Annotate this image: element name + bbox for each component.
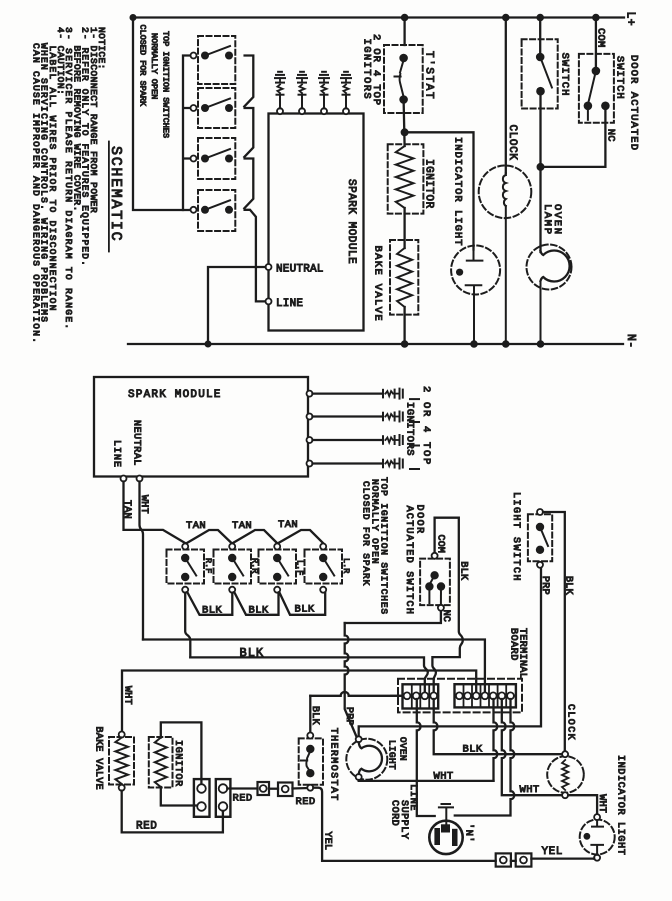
svg-text:RED: RED (136, 821, 157, 833)
svg-text:L+: L+ (624, 12, 637, 27)
svg-text:IGNITORS: IGNITORS (361, 39, 373, 101)
svg-text:WHT: WHT (520, 784, 540, 796)
svg-text:NEUTRAL: NEUTRAL (131, 420, 142, 466)
svg-text:BLK: BLK (563, 576, 574, 595)
svg-text:ACTUATED SWITCH: ACTUATED SWITCH (403, 506, 414, 616)
svg-text:BLK: BLK (240, 646, 265, 660)
svg-text:BLK: BLK (309, 706, 320, 725)
svg-text:WHT: WHT (596, 794, 607, 813)
svg-text:BLK: BLK (249, 605, 269, 617)
svg-text:SPARK MODULE: SPARK MODULE (128, 389, 222, 401)
svg-text:IGNITOR: IGNITOR (423, 159, 435, 209)
svg-text:LINE: LINE (111, 440, 122, 468)
svg-text:CLOSED FOR SPARK: CLOSED FOR SPARK (138, 25, 148, 108)
svg-text:WHT: WHT (138, 495, 149, 514)
svg-text:T'STAT: T'STAT (423, 51, 435, 100)
svg-text:TAN: TAN (186, 520, 206, 532)
svg-text:TOP IGNITION SWITCHES: TOP IGNITION SWITCHES (161, 31, 171, 138)
svg-text:NORMALLY OPEN: NORMALLY OPEN (149, 33, 159, 99)
svg-text:BAKE VALVE: BAKE VALVE (372, 246, 384, 323)
svg-text:BLK: BLK (202, 605, 222, 617)
svg-text:RED: RED (233, 793, 253, 805)
svg-text:L.F: L.F (295, 560, 305, 575)
svg-text:L.R: L.R (341, 558, 351, 573)
svg-text:LIGHT SWITCH: LIGHT SWITCH (510, 492, 521, 582)
svg-text:YEL: YEL (542, 846, 563, 858)
svg-text:COM: COM (435, 535, 446, 554)
svg-text:OVEN: OVEN (398, 737, 409, 761)
svg-text:NEUTRAL: NEUTRAL (276, 264, 324, 276)
svg-text:INDICATOR LIGHT: INDICATOR LIGHT (615, 755, 626, 856)
svg-text:LIGHT: LIGHT (387, 740, 398, 770)
svg-text:PRP: PRP (343, 707, 354, 726)
svg-text:CAN CAUSE IMPROPER AND DANGERO: CAN CAUSE IMPROPER AND DANGEROUS OPERATI… (30, 43, 41, 344)
svg-text:LAMP: LAMP (541, 204, 553, 236)
svg-text:R.R: R.R (250, 558, 260, 573)
svg-text:INDICATOR LIGHT: INDICATOR LIGHT (452, 137, 464, 247)
svg-text:TAN: TAN (232, 520, 252, 532)
svg-text:LINE: LINE (276, 298, 303, 310)
svg-text:TAN: TAN (121, 500, 132, 519)
svg-text:SPARK MODULE: SPARK MODULE (345, 179, 357, 264)
svg-text:PRP: PRP (539, 576, 550, 595)
svg-text:BLK: BLK (295, 604, 315, 616)
svg-text:DOOR ACTUATED: DOOR ACTUATED (628, 55, 640, 151)
svg-text:TAN: TAN (278, 519, 298, 531)
svg-text:IGNITORS: IGNITORS (404, 402, 416, 456)
svg-text:N-: N- (624, 334, 637, 349)
svg-text:RED: RED (296, 796, 316, 808)
svg-text:YEL: YEL (321, 831, 332, 850)
svg-text:BAKE VALVE: BAKE VALVE (93, 727, 104, 791)
svg-text:BOARD: BOARD (508, 628, 519, 661)
svg-text:R.F: R.F (203, 558, 213, 573)
svg-text:2 OR 4 TOP: 2 OR 4 TOP (420, 386, 432, 466)
svg-text:CLOSED FOR SPARK: CLOSED FOR SPARK (361, 481, 372, 586)
svg-text:CORD: CORD (389, 800, 400, 826)
svg-text:WHT: WHT (434, 771, 454, 783)
svg-text:NC: NC (440, 610, 451, 622)
svg-text:CLOCK: CLOCK (565, 704, 576, 741)
svg-text:CLOCK: CLOCK (506, 125, 518, 161)
svg-text:DOOR: DOOR (414, 505, 425, 535)
svg-text:BLK: BLK (457, 561, 468, 580)
svg-text:THERMOSTAT: THERMOSTAT (328, 728, 339, 802)
svg-text:IGNITOR: IGNITOR (172, 740, 183, 787)
svg-text:'N': 'N' (463, 823, 475, 843)
svg-text:WHT: WHT (122, 686, 133, 705)
svg-text:SWITCH: SWITCH (559, 53, 571, 97)
svg-text:COM: COM (595, 28, 607, 48)
svg-text:BLK: BLK (463, 744, 483, 756)
svg-text:SWITCH: SWITCH (614, 56, 626, 100)
